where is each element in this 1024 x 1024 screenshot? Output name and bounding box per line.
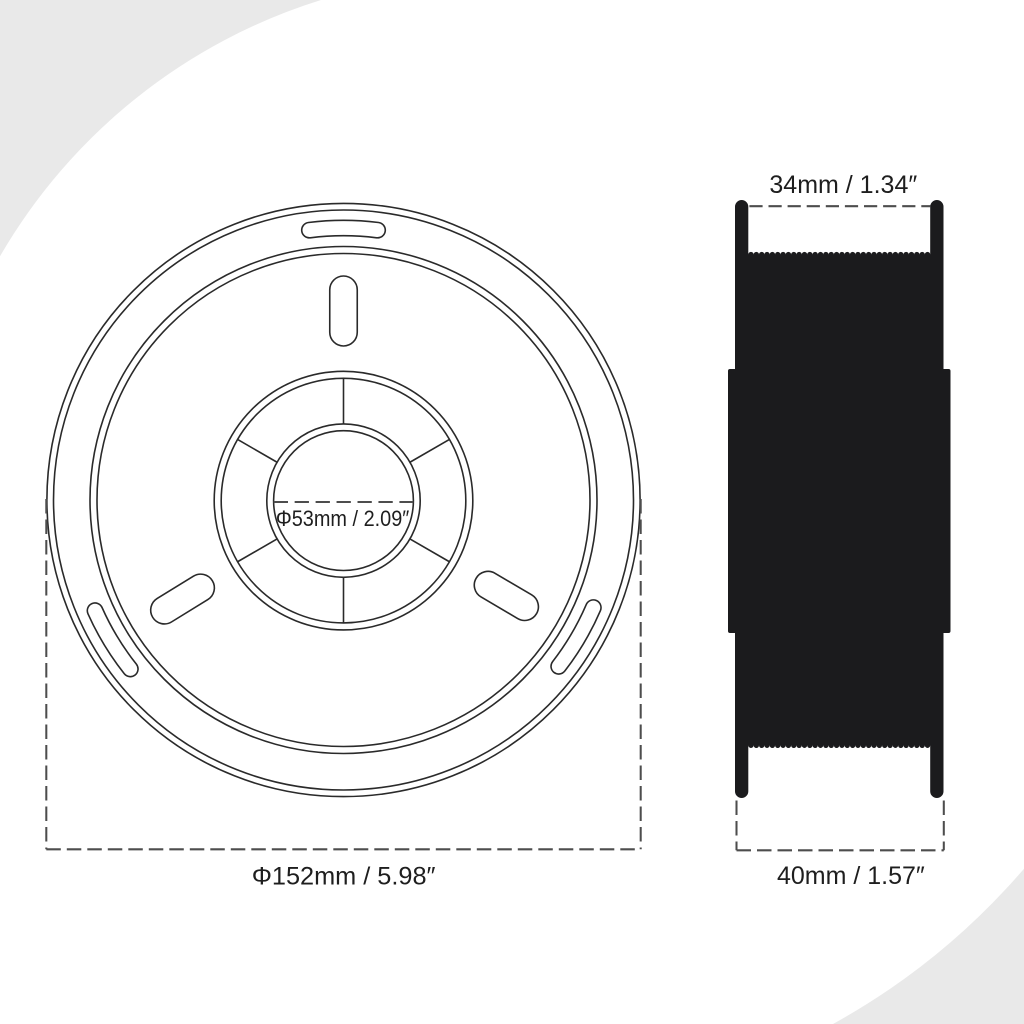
svg-text:40mm / 1.57″: 40mm / 1.57″ (777, 862, 925, 890)
svg-text:34mm / 1.34″: 34mm / 1.34″ (769, 171, 917, 199)
svg-text:Φ152mm / 5.98″: Φ152mm / 5.98″ (252, 862, 436, 890)
svg-text:Φ53mm / 2.09″: Φ53mm / 2.09″ (276, 506, 410, 531)
